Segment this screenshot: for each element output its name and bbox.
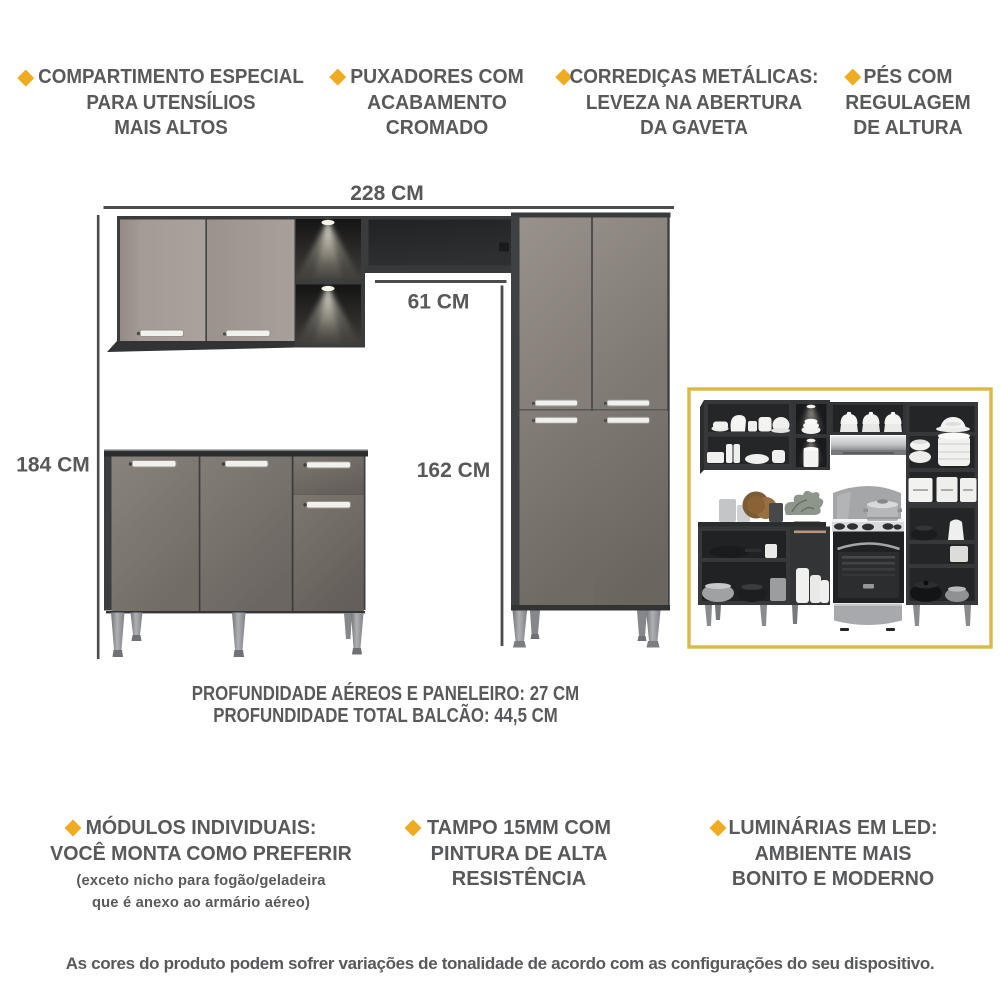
svg-text:228 CM: 228 CM	[350, 182, 424, 205]
svg-text:184 CM: 184 CM	[16, 454, 90, 477]
svg-text:162 CM: 162 CM	[417, 459, 491, 482]
svg-text:61 CM: 61 CM	[408, 291, 470, 314]
